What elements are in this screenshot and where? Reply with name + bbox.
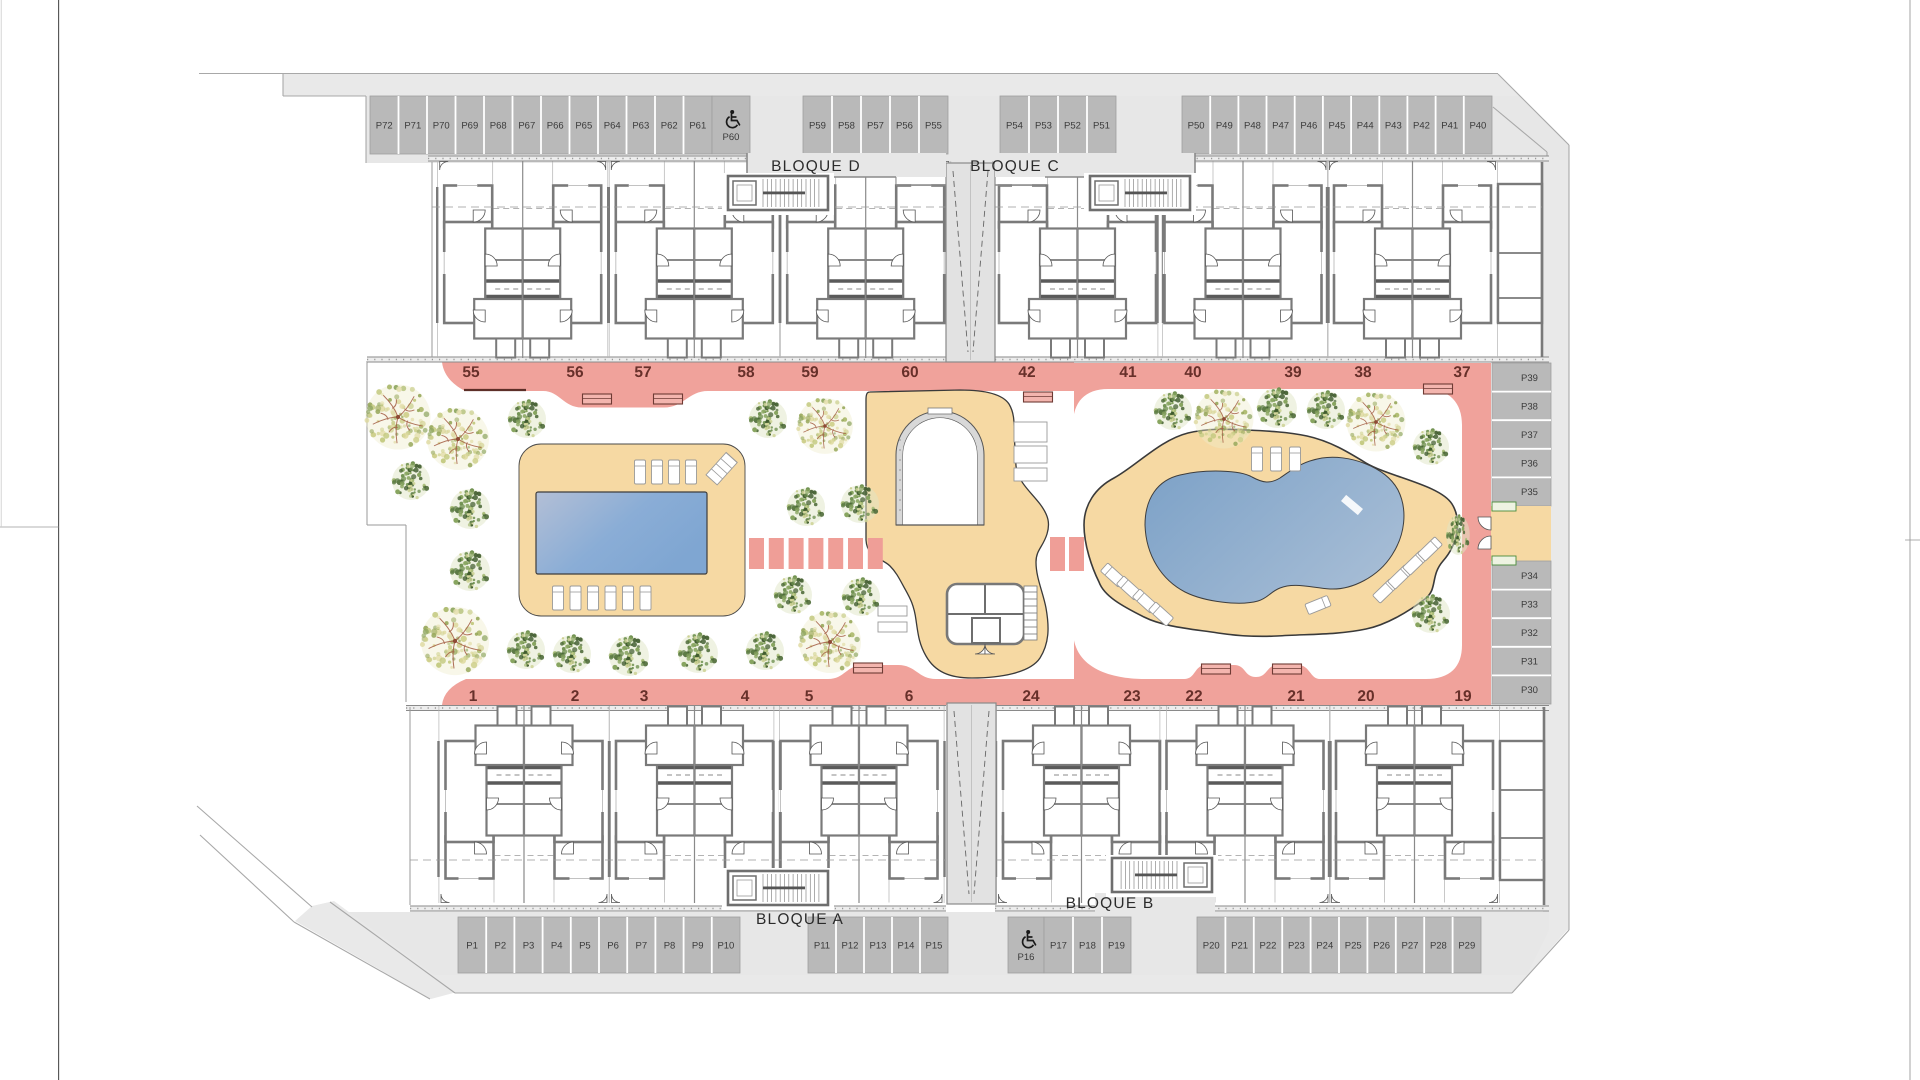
svg-text:56: 56 <box>566 364 584 381</box>
svg-text:38: 38 <box>1354 364 1372 381</box>
svg-text:P46: P46 <box>1300 121 1317 132</box>
svg-text:P70: P70 <box>433 121 450 132</box>
svg-text:5: 5 <box>805 688 814 705</box>
svg-text:P44: P44 <box>1357 121 1374 132</box>
svg-text:P67: P67 <box>518 121 535 132</box>
svg-text:P23: P23 <box>1288 941 1305 952</box>
svg-text:P34: P34 <box>1521 571 1538 582</box>
svg-text:P61: P61 <box>689 121 706 132</box>
svg-text:P51: P51 <box>1093 121 1110 132</box>
svg-text:P49: P49 <box>1216 121 1233 132</box>
svg-text:4: 4 <box>741 688 750 705</box>
svg-text:22: 22 <box>1185 688 1202 705</box>
svg-text:P38: P38 <box>1521 401 1538 412</box>
svg-text:P18: P18 <box>1079 941 1096 952</box>
svg-text:3: 3 <box>640 688 649 705</box>
svg-text:P37: P37 <box>1521 430 1538 441</box>
svg-text:P12: P12 <box>842 941 859 952</box>
svg-text:P42: P42 <box>1413 121 1430 132</box>
svg-text:P30: P30 <box>1521 685 1538 696</box>
svg-text:P58: P58 <box>838 121 855 132</box>
svg-text:P28: P28 <box>1430 941 1447 952</box>
svg-text:P19: P19 <box>1108 941 1125 952</box>
svg-text:P54: P54 <box>1006 121 1023 132</box>
svg-text:P57: P57 <box>867 121 884 132</box>
svg-text:P31: P31 <box>1521 657 1538 668</box>
svg-text:P40: P40 <box>1469 121 1486 132</box>
svg-text:P4: P4 <box>551 941 563 952</box>
svg-text:P15: P15 <box>926 941 943 952</box>
svg-text:P17: P17 <box>1050 941 1067 952</box>
svg-text:P52: P52 <box>1064 121 1081 132</box>
svg-text:P20: P20 <box>1203 941 1220 952</box>
svg-text:P33: P33 <box>1521 599 1538 610</box>
svg-text:P60: P60 <box>723 132 740 143</box>
svg-text:BLOQUE B: BLOQUE B <box>1066 895 1155 912</box>
svg-text:P71: P71 <box>404 121 421 132</box>
svg-text:P50: P50 <box>1188 121 1205 132</box>
svg-text:P68: P68 <box>490 121 507 132</box>
svg-text:P29: P29 <box>1458 941 1475 952</box>
svg-text:60: 60 <box>901 364 918 381</box>
svg-text:P2: P2 <box>494 941 506 952</box>
svg-text:P11: P11 <box>814 941 830 952</box>
svg-text:P21: P21 <box>1231 941 1248 952</box>
svg-text:P6: P6 <box>607 941 619 952</box>
svg-text:P69: P69 <box>461 121 478 132</box>
svg-text:P62: P62 <box>661 121 678 132</box>
svg-text:P59: P59 <box>809 121 826 132</box>
svg-text:40: 40 <box>1184 364 1201 381</box>
svg-text:59: 59 <box>801 364 819 381</box>
svg-text:P47: P47 <box>1272 121 1289 132</box>
svg-text:6: 6 <box>905 688 914 705</box>
svg-text:P9: P9 <box>692 941 704 952</box>
svg-text:P48: P48 <box>1244 121 1261 132</box>
svg-text:BLOQUE C: BLOQUE C <box>970 158 1060 175</box>
svg-text:P72: P72 <box>376 121 393 132</box>
svg-text:20: 20 <box>1357 688 1374 705</box>
svg-text:P53: P53 <box>1035 121 1052 132</box>
svg-text:P36: P36 <box>1521 459 1538 470</box>
svg-text:P22: P22 <box>1260 941 1277 952</box>
svg-text:P41: P41 <box>1441 121 1458 132</box>
svg-text:P3: P3 <box>523 941 535 952</box>
svg-text:58: 58 <box>737 364 755 381</box>
svg-text:57: 57 <box>634 364 651 381</box>
svg-text:P26: P26 <box>1373 941 1390 952</box>
svg-text:2: 2 <box>571 688 580 705</box>
svg-text:P43: P43 <box>1385 121 1402 132</box>
svg-text:P66: P66 <box>547 121 564 132</box>
svg-text:1: 1 <box>469 688 478 705</box>
svg-text:P45: P45 <box>1329 121 1346 132</box>
svg-text:P14: P14 <box>898 941 915 952</box>
svg-text:55: 55 <box>462 364 480 381</box>
svg-text:P63: P63 <box>632 121 649 132</box>
svg-text:41: 41 <box>1119 364 1137 381</box>
svg-text:P27: P27 <box>1402 941 1419 952</box>
svg-text:BLOQUE A: BLOQUE A <box>756 911 844 928</box>
svg-text:39: 39 <box>1284 364 1302 381</box>
svg-text:P55: P55 <box>925 121 942 132</box>
svg-text:42: 42 <box>1018 364 1035 381</box>
svg-text:P16: P16 <box>1018 952 1035 963</box>
svg-text:P64: P64 <box>604 121 621 132</box>
svg-text:P7: P7 <box>635 941 647 952</box>
svg-text:P56: P56 <box>896 121 913 132</box>
svg-text:19: 19 <box>1454 688 1472 705</box>
svg-text:P5: P5 <box>579 941 591 952</box>
svg-text:24: 24 <box>1022 688 1040 705</box>
svg-text:P65: P65 <box>575 121 592 132</box>
svg-text:P39: P39 <box>1521 373 1538 384</box>
svg-text:P13: P13 <box>870 941 887 952</box>
svg-text:21: 21 <box>1287 688 1305 705</box>
svg-text:P8: P8 <box>664 941 676 952</box>
svg-text:P1: P1 <box>466 941 478 952</box>
svg-text:P24: P24 <box>1316 941 1333 952</box>
svg-text:23: 23 <box>1123 688 1141 705</box>
svg-text:BLOQUE D: BLOQUE D <box>771 158 861 175</box>
svg-text:37: 37 <box>1453 364 1470 381</box>
svg-text:P32: P32 <box>1521 628 1538 639</box>
svg-text:P25: P25 <box>1345 941 1362 952</box>
svg-text:P35: P35 <box>1521 487 1538 498</box>
svg-text:P10: P10 <box>717 941 734 952</box>
